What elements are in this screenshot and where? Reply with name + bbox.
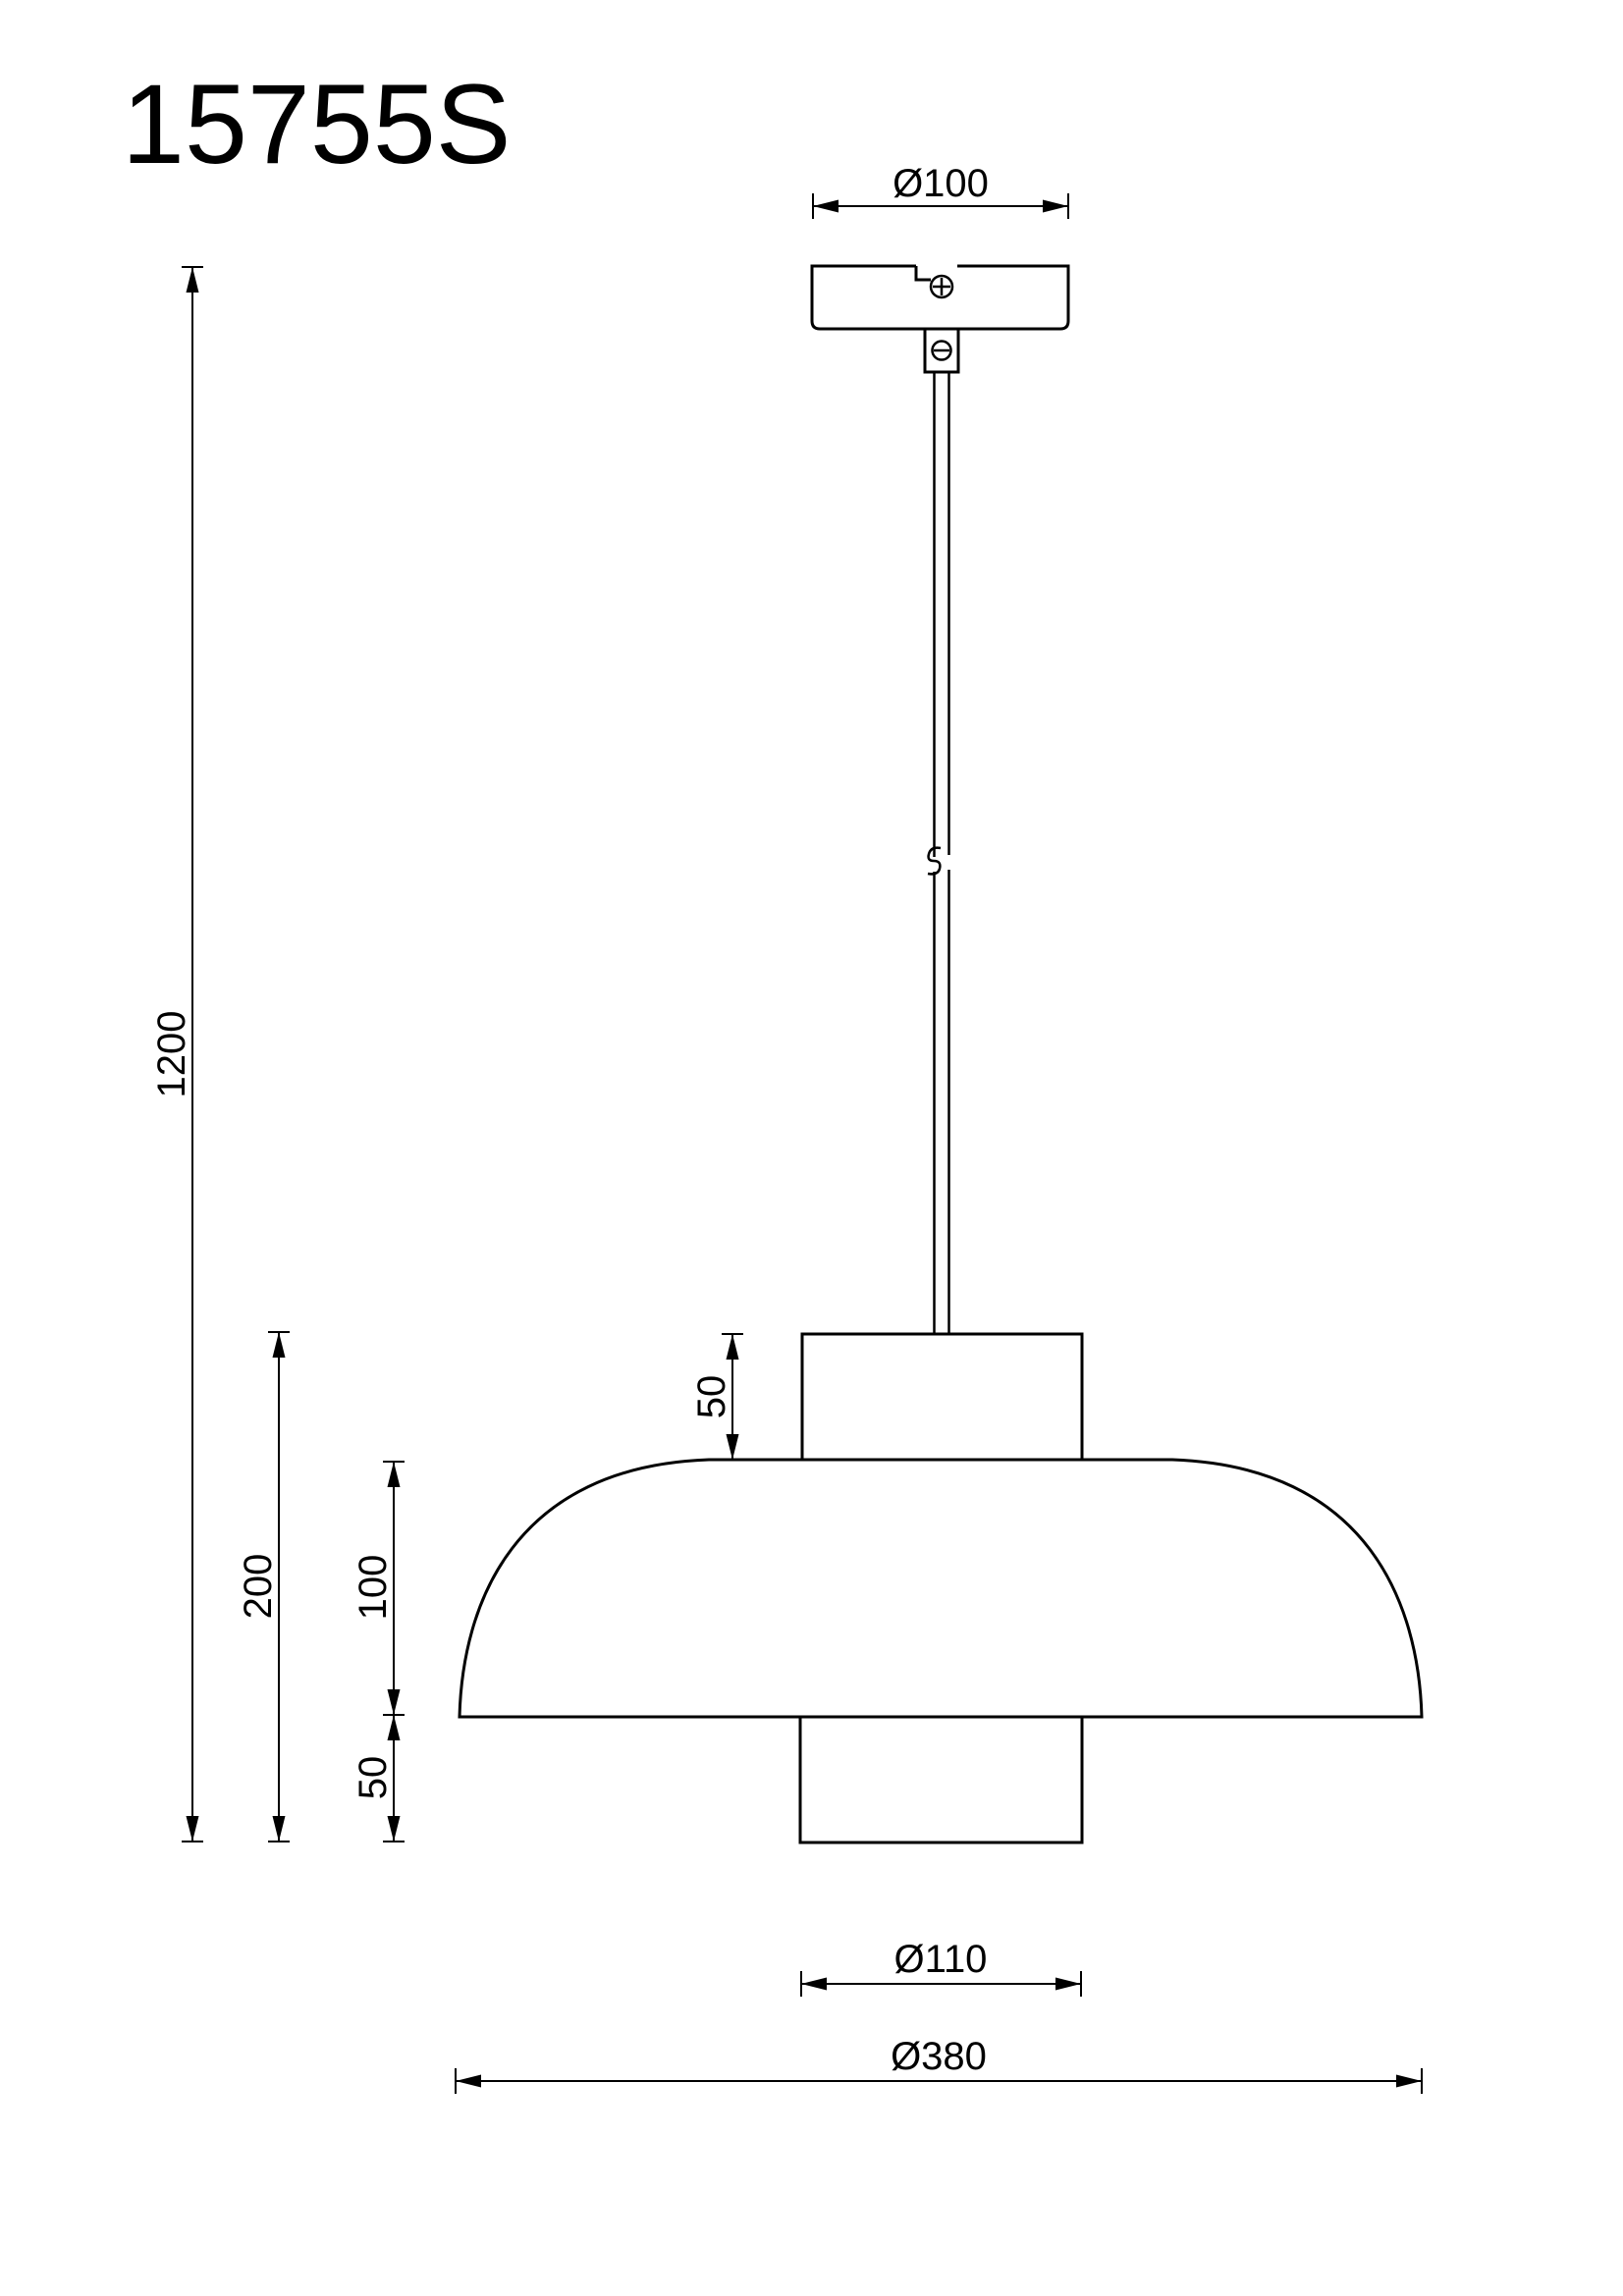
- dim-top-neck-height: 50: [690, 1334, 743, 1460]
- shade-dome: [460, 1460, 1422, 1717]
- arrowhead: [273, 1332, 286, 1358]
- shade-top-neck: [802, 1334, 1082, 1460]
- arrowhead: [187, 1816, 199, 1842]
- dim-shade-diameter-label: Ø380: [891, 2035, 987, 2078]
- dim-bottom-neck-height-label: 50: [352, 1756, 395, 1800]
- drawing-sheet: 15755S Ø100: [0, 0, 1623, 2296]
- dim-shade-height: 200: [237, 1332, 290, 1842]
- arrowhead: [1043, 200, 1068, 213]
- arrowhead: [1396, 2075, 1422, 2088]
- dim-bottom-neck-height: 50: [352, 1715, 405, 1842]
- shade-bottom-neck: [800, 1717, 1082, 1842]
- ceiling-canopy: [812, 266, 1068, 372]
- technical-drawing: 15755S Ø100: [0, 0, 1623, 2296]
- dim-shade-diameter: Ø380: [456, 2035, 1422, 2094]
- dim-total-drop-label: 1200: [150, 1011, 193, 1098]
- dim-canopy-diameter-label: Ø100: [893, 162, 989, 205]
- arrowhead: [388, 1462, 401, 1487]
- dim-dome-height-label: 100: [352, 1555, 395, 1621]
- dim-top-neck-height-label: 50: [690, 1375, 733, 1419]
- product-code-label: 15755S: [122, 62, 512, 187]
- arrowhead: [388, 1816, 401, 1842]
- dim-bottom-neck-diameter: Ø110: [801, 1938, 1081, 1997]
- arrowhead: [1055, 1978, 1081, 1991]
- phillips-screw-icon: [931, 276, 952, 297]
- arrowhead: [456, 2075, 481, 2088]
- arrowhead: [273, 1816, 286, 1842]
- dim-shade-height-label: 200: [237, 1554, 280, 1620]
- slotted-screw-icon: [933, 342, 951, 360]
- dim-total-drop: 1200: [150, 267, 203, 1842]
- arrowhead: [813, 200, 839, 213]
- dim-canopy-diameter: Ø100: [813, 162, 1068, 219]
- dim-dome-height: 100: [352, 1462, 405, 1715]
- arrowhead: [187, 267, 199, 293]
- arrowhead: [388, 1715, 401, 1740]
- lamp-shade: [460, 1334, 1422, 1842]
- suspension-cable: [928, 372, 949, 1334]
- dim-bottom-neck-diameter-label: Ø110: [894, 1938, 988, 1981]
- arrowhead: [727, 1334, 739, 1360]
- arrowhead: [801, 1978, 827, 1991]
- arrowhead: [388, 1689, 401, 1715]
- arrowhead: [727, 1434, 739, 1460]
- canopy-notch: [916, 266, 931, 280]
